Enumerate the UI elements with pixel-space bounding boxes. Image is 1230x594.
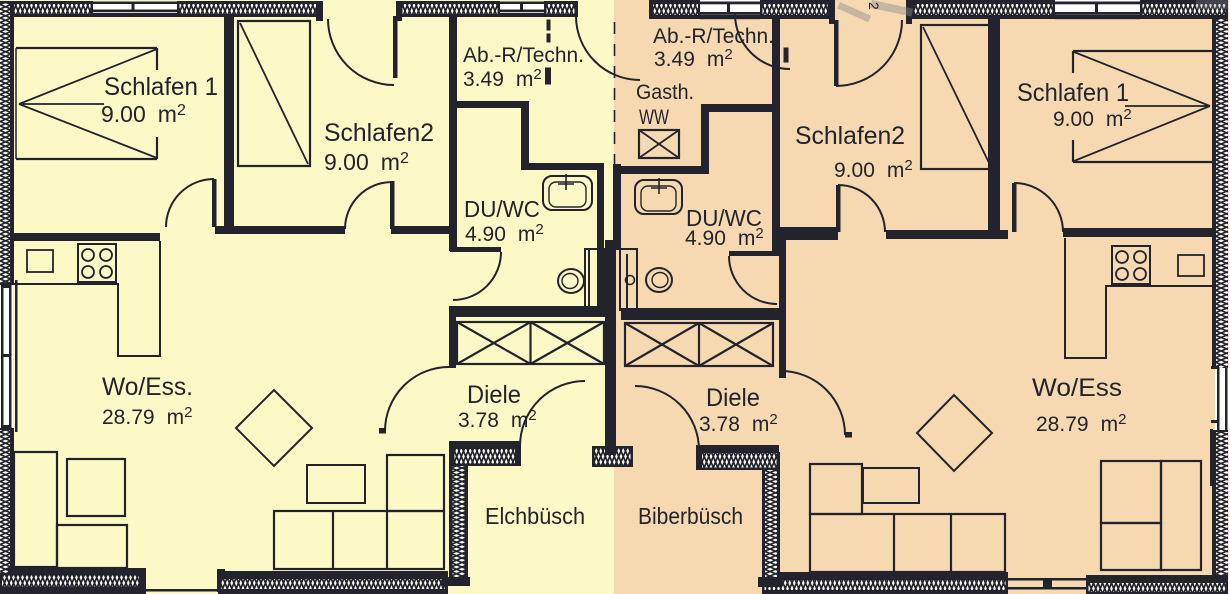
svg-text:Ab.-R/Techn.: Ab.-R/Techn. bbox=[463, 44, 584, 67]
svg-text:2: 2 bbox=[866, 2, 882, 10]
svg-text:3.78m2: 3.78m2 bbox=[699, 411, 778, 436]
svg-text:Elchbüsch: Elchbüsch bbox=[485, 503, 585, 529]
svg-text:Gasth.: Gasth. bbox=[636, 81, 694, 104]
svg-text:DU/WC: DU/WC bbox=[464, 196, 540, 222]
svg-text:4.90m2: 4.90m2 bbox=[685, 225, 764, 250]
svg-text:3.78m2: 3.78m2 bbox=[458, 407, 537, 432]
svg-text:Wo/Ess.: Wo/Ess. bbox=[102, 373, 193, 401]
svg-text:3.49m2: 3.49m2 bbox=[463, 66, 542, 91]
svg-text:9.00m2: 9.00m2 bbox=[101, 101, 186, 127]
svg-text:Diele: Diele bbox=[467, 381, 521, 409]
svg-text:Schlafen2: Schlafen2 bbox=[324, 119, 434, 147]
svg-text:Diele: Diele bbox=[706, 384, 760, 412]
svg-text:WW: WW bbox=[639, 106, 669, 129]
svg-text:4.90m2: 4.90m2 bbox=[465, 221, 544, 246]
svg-text:9.00m2: 9.00m2 bbox=[1053, 106, 1132, 131]
svg-text:Ab.-R/Techn.: Ab.-R/Techn. bbox=[653, 25, 774, 48]
svg-text:Wo/Ess: Wo/Ess bbox=[1032, 374, 1122, 402]
svg-text:28.79m2: 28.79m2 bbox=[1036, 411, 1126, 436]
svg-text:28.79m2: 28.79m2 bbox=[102, 404, 192, 429]
svg-text:Schlafen 1: Schlafen 1 bbox=[104, 73, 218, 101]
svg-text:Schlafen 1: Schlafen 1 bbox=[1017, 79, 1129, 107]
svg-text:3.49m2: 3.49m2 bbox=[654, 46, 733, 71]
svg-text:9.00m2: 9.00m2 bbox=[834, 157, 913, 182]
svg-text:Biberbüsch: Biberbüsch bbox=[638, 503, 743, 529]
svg-text:Schlafen2: Schlafen2 bbox=[795, 122, 905, 150]
svg-text:9.00m2: 9.00m2 bbox=[324, 149, 409, 175]
